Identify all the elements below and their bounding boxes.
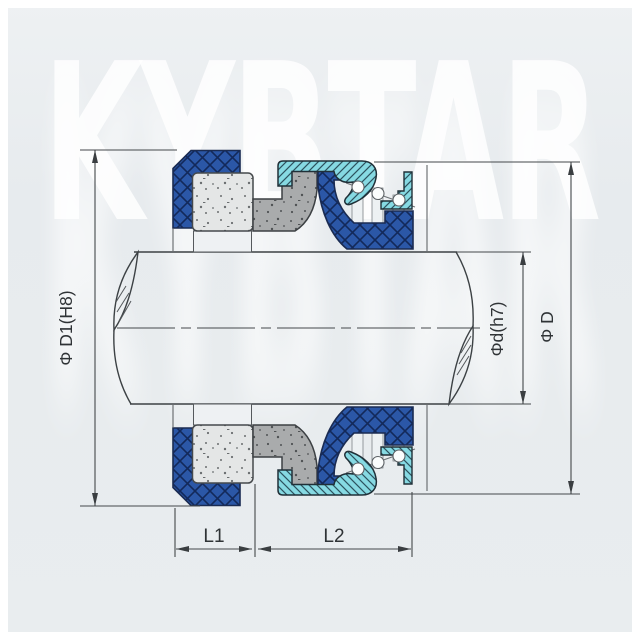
shaft-diameter-label: Φd(h7) <box>487 302 507 357</box>
length-l1-label: L1 <box>203 526 224 547</box>
seal-assembly-top <box>173 151 427 253</box>
bore-diameter-label: Φ D1(H8) <box>56 290 76 365</box>
shaft <box>114 252 480 404</box>
spring-coil <box>372 188 384 200</box>
spring-coil <box>393 194 405 206</box>
stationary-seat-ring <box>193 173 254 231</box>
seal-assembly-bottom <box>173 404 427 506</box>
seat-boot-lip <box>194 231 252 252</box>
spring-coil <box>352 181 364 193</box>
seal-cross-section-drawing: Φ D1(H8) Φd(h7) Φ D <box>0 0 640 640</box>
technical-drawing-page: KYBTAR KYBTAR <box>0 0 640 640</box>
length-l2-label: L2 <box>323 526 344 547</box>
outer-diameter-label: Φ D <box>537 311 557 342</box>
